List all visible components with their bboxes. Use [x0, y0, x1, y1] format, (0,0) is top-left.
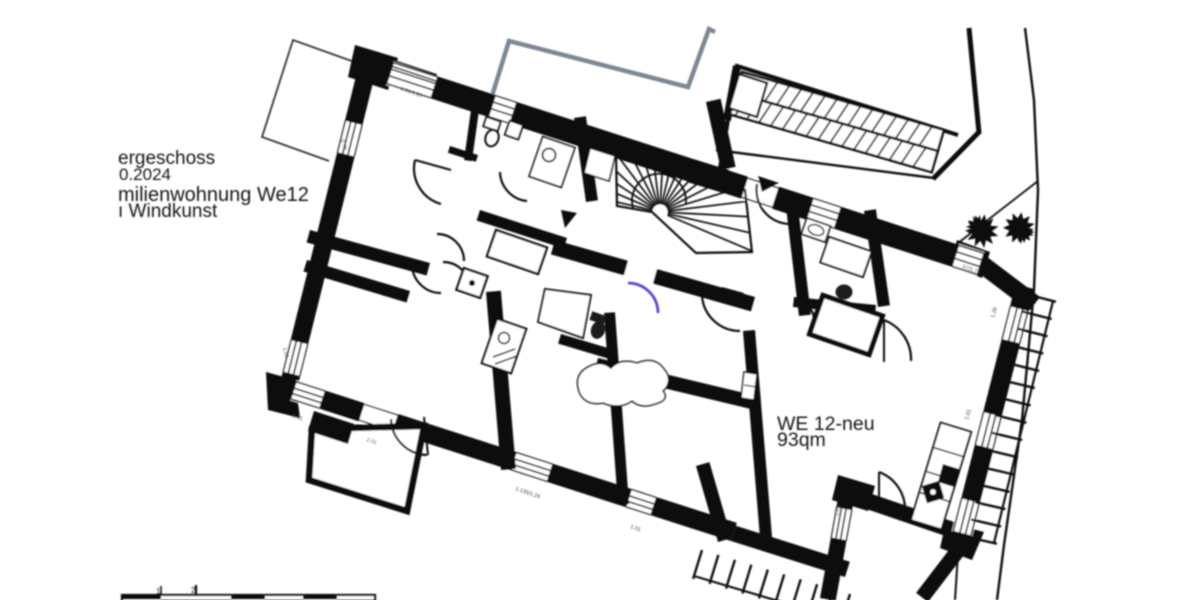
svg-text:1: 1: [156, 587, 161, 596]
svg-text:93qm: 93qm: [777, 429, 826, 451]
svg-text:ı Windkunst: ı Windkunst: [118, 201, 218, 222]
svg-text:2: 2: [191, 586, 196, 595]
svg-text:0.2024: 0.2024: [119, 165, 171, 184]
